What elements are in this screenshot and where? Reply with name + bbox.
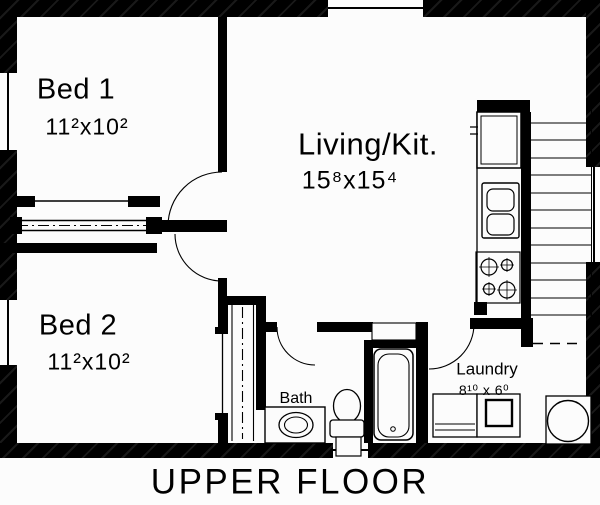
vanity-sink-fixture (265, 407, 325, 443)
toilet-fixture (330, 390, 364, 457)
bed2-label: Bed 2 (39, 312, 117, 341)
laundry-label: Laundry (456, 361, 517, 378)
living-label: Living/Kit. (298, 129, 438, 160)
laundry-dims: 8¹⁰ x 6⁰ (459, 383, 509, 397)
utility-sink-fixture (546, 396, 591, 444)
washer-fixture (433, 394, 477, 437)
stove-fixture (476, 252, 520, 303)
bed1-closet-sliding-doors-fixture (17, 201, 160, 231)
floor-plan: Bed 1 11²x10² Bed 2 11²x10² Living/Kit. … (0, 0, 600, 505)
door-arc-bed2 (175, 234, 222, 281)
linen-niche-fixture (372, 323, 416, 340)
bathtub-fixture (374, 349, 413, 440)
page-title: UPPER FLOOR (151, 465, 429, 500)
bath-label: Bath (280, 391, 313, 407)
bed1-dims: 11²x10² (45, 116, 128, 139)
door-arc-bed1 (168, 172, 222, 226)
bed1-label: Bed 1 (37, 76, 115, 105)
kitchen-sink-fixture (482, 183, 519, 238)
refrigerator-fixture (470, 112, 521, 168)
dryer-fixture (477, 394, 520, 437)
bed2-dims: 11²x10² (47, 351, 130, 374)
door-arc-bath (277, 327, 315, 365)
bed2-closet-sliding-doors-fixture (223, 305, 254, 441)
stairs-fixture (530, 103, 592, 318)
living-dims: 15⁸x15⁴ (302, 169, 398, 194)
